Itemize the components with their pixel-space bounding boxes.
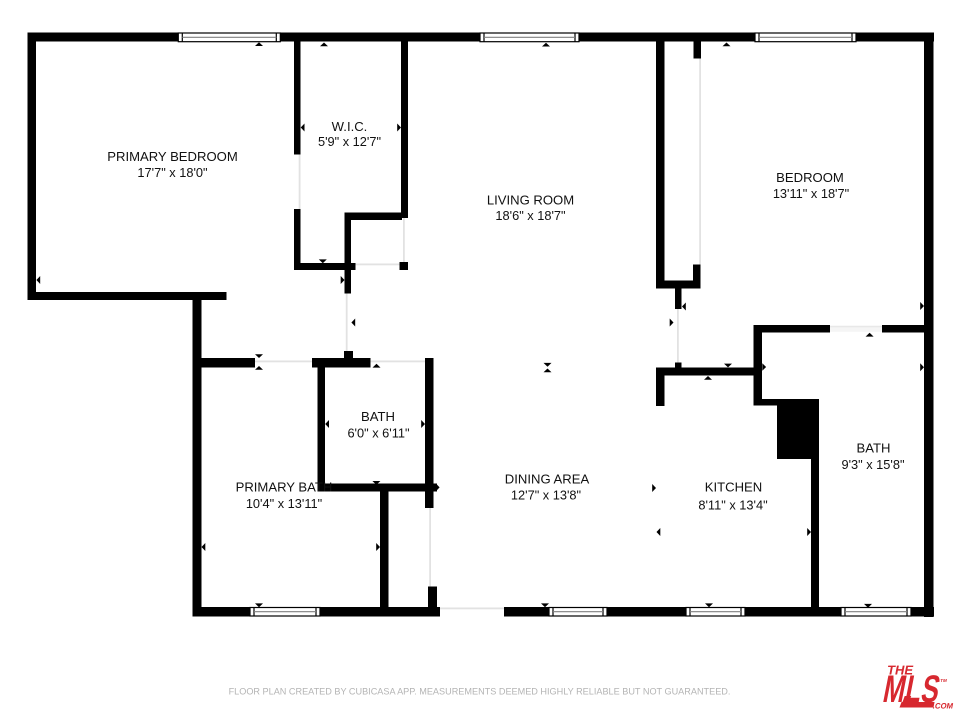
svg-text:6'0" x 6'11": 6'0" x 6'11" bbox=[347, 425, 409, 440]
svg-text:DINING AREA: DINING AREA bbox=[505, 471, 590, 486]
svg-text:13'11" x 18'7": 13'11" x 18'7" bbox=[773, 186, 849, 201]
svg-text:BEDROOM: BEDROOM bbox=[776, 170, 844, 185]
svg-text:PRIMARY BATH: PRIMARY BATH bbox=[236, 480, 333, 495]
svg-text:18'6" x 18'7": 18'6" x 18'7" bbox=[495, 208, 565, 223]
svg-text:.COM: .COM bbox=[932, 701, 955, 710]
svg-text:5'9" x 12'7": 5'9" x 12'7" bbox=[318, 134, 381, 149]
svg-text:FLOOR PLAN CREATED BY CUBICASA: FLOOR PLAN CREATED BY CUBICASA APP. MEAS… bbox=[229, 687, 731, 697]
svg-text:10'4" x 13'11": 10'4" x 13'11" bbox=[246, 496, 322, 511]
svg-text:17'7" x 18'0": 17'7" x 18'0" bbox=[137, 165, 207, 180]
svg-text:9'3" x 15'8": 9'3" x 15'8" bbox=[841, 457, 904, 472]
svg-text:8'11" x 13'4": 8'11" x 13'4" bbox=[698, 497, 767, 512]
svg-text:W.I.C.: W.I.C. bbox=[332, 119, 368, 134]
svg-text:LIVING ROOM: LIVING ROOM bbox=[487, 192, 574, 207]
svg-text:BATH: BATH bbox=[361, 409, 395, 424]
svg-text:KITCHEN: KITCHEN bbox=[705, 480, 762, 495]
svg-text:12'7" x 13'8": 12'7" x 13'8" bbox=[511, 487, 581, 502]
svg-text:TM: TM bbox=[940, 678, 948, 683]
svg-text:BATH: BATH bbox=[857, 440, 891, 455]
svg-text:PRIMARY BEDROOM: PRIMARY BEDROOM bbox=[107, 149, 237, 164]
